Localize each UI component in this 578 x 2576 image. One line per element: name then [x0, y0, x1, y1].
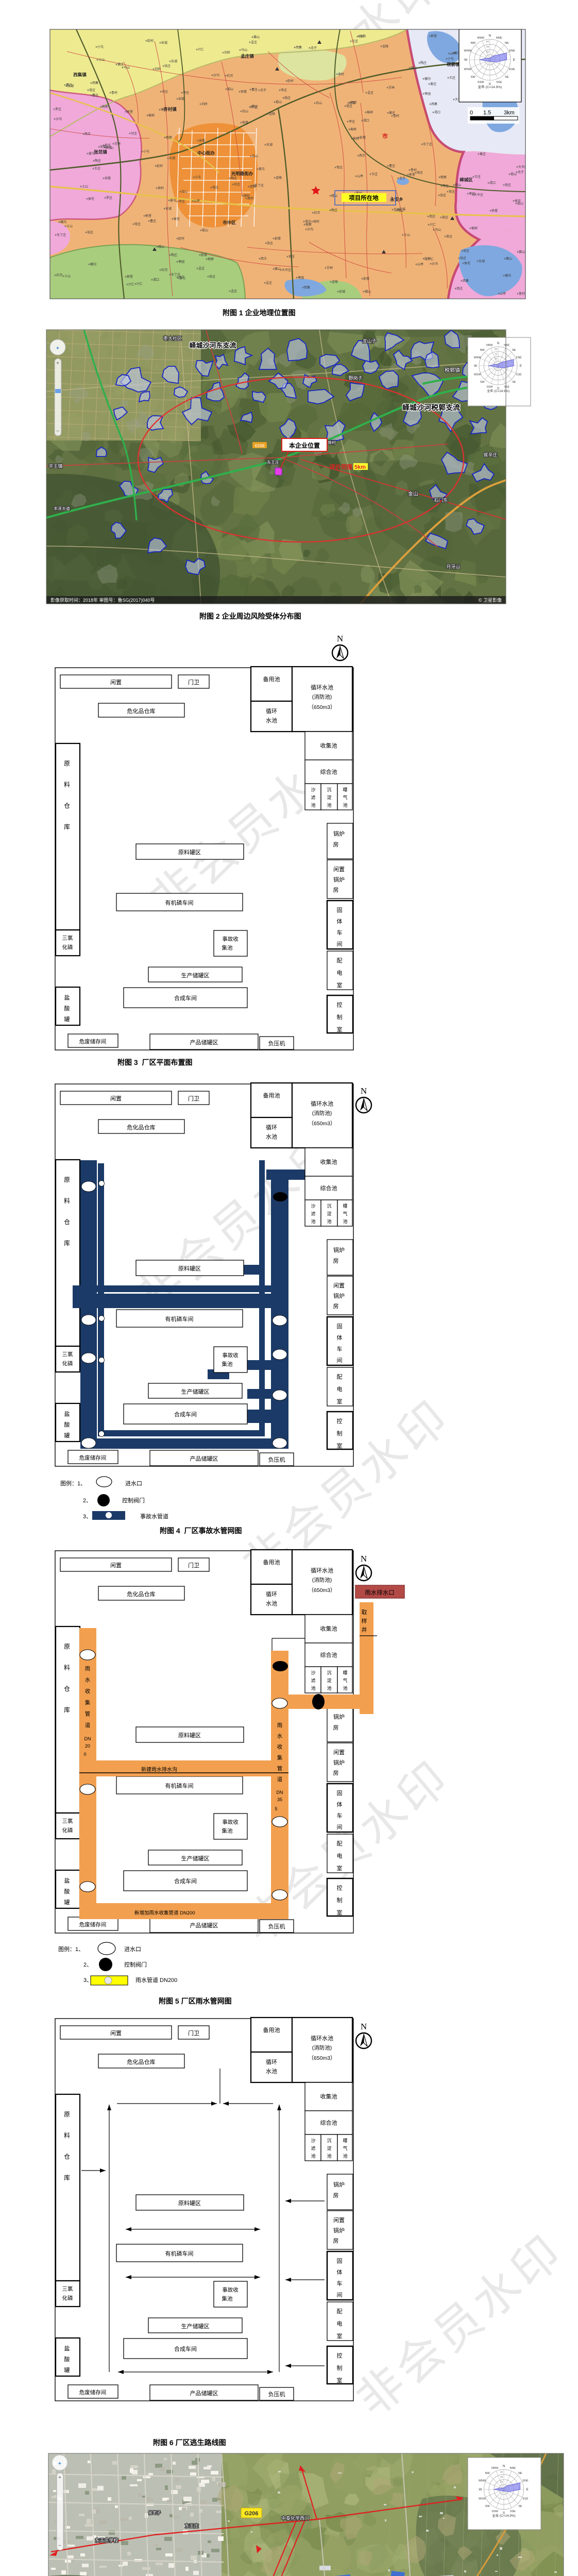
svg-text:付庄: 付庄: [162, 90, 168, 94]
svg-text:全年 (C=14.9%): 全年 (C=14.9%): [478, 84, 502, 89]
svg-text:孤山: 孤山: [227, 87, 233, 91]
svg-text:官庄: 官庄: [463, 249, 469, 253]
svg-text:北于: 北于: [311, 46, 317, 50]
svg-text:孟庄: 孟庄: [266, 281, 272, 285]
svg-text:孟庄镇: 孟庄镇: [241, 54, 254, 59]
svg-text:N: N: [361, 1086, 367, 1096]
svg-text:南庄: 南庄: [456, 286, 463, 291]
svg-text:孟庄: 孟庄: [231, 289, 237, 293]
svg-text:陶庄: 陶庄: [231, 176, 237, 180]
svg-text:雨: 雨: [85, 1666, 91, 1672]
svg-text:西王: 西王: [359, 154, 365, 158]
svg-text:孤山: 孤山: [517, 201, 523, 206]
svg-text:5km: 5km: [354, 464, 366, 470]
svg-text:WNW: WNW: [464, 49, 471, 53]
svg-text:南庄: 南庄: [284, 96, 291, 100]
svg-text:WNW: WNW: [474, 356, 481, 359]
svg-text:郭里: 郭里: [145, 214, 151, 218]
svg-text:官庄: 官庄: [288, 255, 295, 259]
svg-text:侯宅: 侯宅: [464, 261, 470, 265]
svg-text:山亭: 山亭: [194, 199, 200, 203]
svg-text:E: E: [520, 364, 522, 368]
svg-text:+: +: [58, 2475, 61, 2481]
svg-text:郭里: 郭里: [431, 34, 437, 38]
svg-text:税郭: 税郭: [166, 135, 172, 140]
svg-text:峨山: 峨山: [365, 290, 371, 294]
svg-text:东丁庄: 东丁庄: [423, 142, 432, 146]
svg-text:DN: DN: [84, 1736, 91, 1741]
svg-text:NNW: NNW: [477, 37, 484, 40]
svg-text:0: 0: [83, 1752, 86, 1757]
svg-text:鲁村: 鲁村: [111, 91, 117, 95]
svg-text:NW: NW: [480, 349, 485, 352]
svg-text:王庄: 王庄: [94, 166, 100, 171]
svg-text:兴仁: 兴仁: [137, 282, 143, 286]
svg-text:官庄: 官庄: [449, 190, 455, 194]
svg-text:NW: NW: [470, 42, 475, 45]
svg-text:西集镇: 西集镇: [73, 72, 87, 77]
svg-text:WSW: WSW: [474, 374, 481, 377]
svg-text:© 卫星影像: © 卫星影像: [479, 597, 502, 603]
svg-text:SSE: SSE: [510, 2510, 516, 2513]
svg-text:付庄: 付庄: [234, 182, 240, 187]
svg-text:ESE: ESE: [516, 374, 522, 377]
svg-text:10: 10: [495, 358, 497, 360]
svg-text:东湖: 东湖: [266, 143, 273, 147]
svg-text:10: 10: [486, 50, 489, 54]
svg-text:N: N: [489, 34, 491, 38]
svg-text:赵村: 赵村: [178, 236, 184, 241]
svg-text:马山: 马山: [124, 65, 130, 70]
svg-text:丰泽大道: 丰泽大道: [54, 506, 70, 511]
svg-text:事故水管道: 事故水管道: [140, 1513, 168, 1520]
svg-text:马山: 马山: [435, 228, 441, 232]
svg-text:石河: 石河: [161, 268, 167, 272]
svg-text:新建雨水排水沟: 新建雨水排水沟: [141, 1766, 177, 1773]
svg-text:NNW: NNW: [486, 344, 493, 347]
svg-text:兴仁: 兴仁: [430, 223, 436, 227]
svg-text:NNE: NNE: [504, 344, 510, 347]
svg-text:曹庄: 曹庄: [389, 164, 395, 168]
svg-text:常庄: 常庄: [346, 104, 352, 108]
svg-text:控制阀门: 控制阀门: [124, 1961, 147, 1968]
svg-text:西王: 西王: [261, 257, 267, 261]
svg-text:沙沟: 沙沟: [307, 227, 313, 231]
svg-text:沙沟: 沙沟: [432, 262, 438, 266]
svg-text:管: 管: [85, 1710, 91, 1717]
svg-text:SSE: SSE: [504, 385, 509, 388]
svg-text:G206: G206: [245, 2511, 259, 2517]
svg-text:15: 15: [486, 45, 489, 48]
svg-text:李庄: 李庄: [179, 199, 185, 204]
svg-text:刘岭: 刘岭: [155, 67, 161, 71]
svg-text:黄庄: 黄庄: [480, 152, 486, 156]
svg-text:永安乡: 永安乡: [389, 197, 403, 202]
svg-text:5: 5: [275, 1806, 277, 1811]
svg-text:赵村: 赵村: [147, 39, 154, 43]
svg-text:彭楼: 彭楼: [360, 135, 366, 140]
svg-text:榆树: 榆树: [471, 226, 478, 230]
svg-text:平王镇: 平王镇: [48, 463, 62, 469]
svg-text:−: −: [58, 2543, 61, 2549]
svg-text:安城: 安城: [165, 207, 172, 211]
svg-text:枣大社区: 枣大社区: [163, 335, 182, 341]
svg-text:姜屯: 姜屯: [170, 198, 176, 202]
svg-text:山亭: 山亭: [417, 262, 423, 266]
svg-text:WNW: WNW: [479, 2480, 486, 2483]
svg-text:渴口: 渴口: [489, 181, 496, 185]
svg-text:宋楼: 宋楼: [105, 176, 111, 180]
svg-text:1.5: 1.5: [483, 110, 491, 116]
svg-text:东湖: 东湖: [171, 59, 177, 63]
svg-text:齐村镇: 齐村镇: [163, 107, 177, 112]
svg-text:35: 35: [277, 1797, 282, 1802]
svg-text:姜屯: 姜屯: [259, 167, 265, 171]
svg-text:15: 15: [495, 352, 497, 355]
svg-text:金陵: 金陵: [382, 44, 388, 48]
svg-text:峨山: 峨山: [455, 183, 461, 187]
svg-text:ENE: ENE: [516, 356, 522, 359]
svg-text:水: 水: [85, 1677, 91, 1683]
svg-text:曹庄: 曹庄: [66, 83, 72, 87]
svg-text:常庄: 常庄: [336, 165, 343, 170]
svg-text:孤山: 孤山: [276, 100, 282, 104]
svg-text:SW: SW: [485, 2505, 490, 2508]
svg-text:周村: 周村: [247, 196, 253, 200]
svg-text:SSW: SSW: [478, 81, 485, 84]
svg-text:取: 取: [362, 1609, 367, 1616]
svg-text:雨水排水口: 雨水排水口: [365, 1589, 395, 1596]
svg-text:宋楼: 宋楼: [199, 139, 205, 143]
svg-text:20: 20: [85, 1743, 90, 1749]
svg-text:东湖: 东湖: [169, 156, 175, 160]
svg-text:兴仁: 兴仁: [198, 47, 204, 52]
svg-text:土山: 土山: [98, 58, 105, 62]
svg-text:NE: NE: [505, 42, 509, 45]
svg-text:NNW: NNW: [491, 2467, 499, 2470]
svg-text:N: N: [337, 634, 343, 643]
svg-text:兴仁: 兴仁: [428, 257, 434, 261]
svg-text:W: W: [464, 58, 468, 62]
svg-text:−: −: [56, 429, 59, 434]
svg-text:徐楼: 徐楼: [241, 90, 247, 94]
svg-text:赵村: 赵村: [157, 164, 163, 168]
svg-text:赛山: 赛山: [519, 250, 525, 254]
svg-text:彭楼: 彭楼: [275, 236, 281, 241]
svg-text:刘岭: 刘岭: [224, 50, 230, 55]
svg-text:图例：1、: 图例：1、: [60, 1480, 86, 1487]
svg-text:进水口: 进水口: [124, 1946, 141, 1953]
svg-text:样: 样: [362, 1617, 367, 1624]
svg-text:市: 市: [382, 132, 388, 140]
svg-text:金陵: 金陵: [332, 280, 338, 284]
svg-text:渴口: 渴口: [434, 110, 440, 114]
svg-text:NE: NE: [512, 349, 516, 352]
svg-text:曹庄: 曹庄: [251, 88, 258, 92]
svg-text:榆树: 榆树: [148, 113, 155, 117]
svg-text:陶庄: 陶庄: [420, 61, 427, 65]
svg-text:侯宅: 侯宅: [88, 197, 94, 201]
svg-text:张庄: 张庄: [267, 241, 273, 245]
svg-text:W: W: [479, 2488, 482, 2492]
svg-text:马山: 马山: [241, 48, 247, 52]
svg-text:黄庄: 黄庄: [389, 111, 395, 115]
svg-text:黄庄: 黄庄: [430, 82, 436, 86]
svg-text:全年 (C=14.9%): 全年 (C=14.9%): [492, 2513, 515, 2518]
svg-text:沙沟: 沙沟: [213, 73, 219, 77]
svg-text:控制阀门: 控制阀门: [122, 1497, 145, 1504]
svg-text:集: 集: [277, 1754, 283, 1761]
svg-text:东丁庄: 东丁庄: [57, 233, 66, 237]
svg-text:周村: 周村: [313, 219, 319, 224]
svg-text:南庄: 南庄: [429, 214, 435, 218]
svg-text:+: +: [56, 361, 59, 366]
svg-text:孟庄: 孟庄: [367, 91, 373, 95]
svg-text:雨水管道 DN200: 雨水管道 DN200: [135, 1976, 177, 1984]
svg-text:榆树: 榆树: [353, 137, 359, 141]
svg-text:陶庄: 陶庄: [171, 253, 177, 257]
svg-text:N: N: [503, 2464, 505, 2468]
svg-text:SE: SE: [505, 76, 509, 79]
svg-text:ENE: ENE: [509, 49, 515, 53]
svg-text:东王庄学校: 东王庄学校: [95, 2537, 118, 2543]
svg-text:税郭镇: 税郭镇: [447, 62, 460, 67]
svg-text:20: 20: [495, 348, 497, 350]
svg-text:峨山: 峨山: [331, 194, 337, 198]
svg-text:山亭: 山亭: [450, 52, 456, 56]
svg-text:峨山: 峨山: [158, 245, 164, 249]
svg-text:龙山子: 龙山子: [362, 338, 376, 344]
svg-text:张庄: 张庄: [440, 193, 446, 197]
svg-text:沙沟: 沙沟: [360, 34, 366, 38]
svg-text:李庄: 李庄: [281, 88, 287, 92]
svg-text:北于: 北于: [399, 176, 405, 180]
svg-text:榆树: 榆树: [350, 127, 356, 131]
svg-text:收: 收: [277, 1743, 283, 1750]
svg-text:安城: 安城: [399, 207, 405, 211]
svg-text:大辛庄: 大辛庄: [518, 165, 528, 169]
svg-text:鲁村: 鲁村: [519, 292, 525, 296]
svg-text:山亭: 山亭: [357, 174, 363, 178]
svg-text:彭楼: 彭楼: [363, 277, 369, 281]
svg-text:鲁村: 鲁村: [411, 168, 417, 172]
svg-text:常庄: 常庄: [89, 88, 95, 92]
svg-text:沙沟: 沙沟: [56, 117, 62, 121]
svg-text:陶庄: 陶庄: [95, 159, 101, 163]
svg-text:评价范围: 评价范围: [330, 463, 352, 470]
svg-text:王庄: 王庄: [449, 76, 455, 80]
svg-text:罗庄: 罗庄: [252, 105, 258, 109]
svg-text:郭里: 郭里: [127, 110, 133, 114]
svg-text:土山: 土山: [66, 224, 73, 228]
svg-text:中泰化学西门: 中泰化学西门: [281, 2515, 309, 2521]
svg-text:大辛庄: 大辛庄: [474, 193, 483, 197]
svg-text:小屯: 小屯: [143, 149, 149, 154]
svg-text:孟庄: 孟庄: [251, 40, 257, 44]
svg-text:东湖: 东湖: [479, 259, 485, 263]
svg-text:大辛庄: 大辛庄: [282, 268, 291, 272]
svg-text:西集: 西集: [92, 81, 98, 85]
svg-text:孟庄: 孟庄: [198, 266, 205, 270]
svg-text:宋楼: 宋楼: [178, 97, 184, 101]
svg-text:东王庄: 东王庄: [184, 2523, 198, 2529]
svg-text:ENE: ENE: [522, 2480, 529, 2483]
svg-text:进水口: 进水口: [125, 1480, 142, 1487]
svg-text:6268: 6268: [255, 443, 265, 448]
svg-text:市中区: 市中区: [223, 220, 236, 225]
svg-text:侯宅子: 侯宅子: [148, 2510, 161, 2515]
svg-text:✦: ✦: [56, 346, 60, 351]
svg-text:N: N: [361, 2022, 367, 2031]
svg-text:曹庄: 曹庄: [150, 219, 156, 223]
svg-text:罗庄: 罗庄: [106, 196, 112, 200]
svg-text:苗庄: 苗庄: [442, 215, 448, 219]
svg-text:W: W: [474, 364, 477, 368]
svg-text:金山: 金山: [408, 490, 418, 497]
svg-text:SW: SW: [471, 76, 476, 79]
svg-text:张庄: 张庄: [87, 230, 93, 234]
svg-text:NNE: NNE: [509, 2467, 516, 2470]
svg-text:渴口: 渴口: [153, 278, 159, 282]
svg-text:刘岭: 刘岭: [201, 102, 208, 106]
svg-text:王庄: 王庄: [474, 175, 481, 179]
svg-text:ESE: ESE: [522, 2497, 528, 2500]
svg-text:罗庄: 罗庄: [55, 107, 61, 111]
svg-text:项目所在地: 项目所在地: [349, 194, 379, 201]
svg-text:横沟: 横沟: [90, 262, 96, 266]
svg-text:榆树: 榆树: [367, 110, 373, 114]
svg-text:付庄: 付庄: [178, 275, 184, 279]
svg-text:税郭: 税郭: [102, 105, 108, 109]
svg-text:张庄: 张庄: [460, 256, 466, 260]
svg-text:小屯: 小屯: [195, 175, 201, 179]
svg-text:李庄: 李庄: [349, 120, 355, 124]
svg-text:安城: 安城: [339, 290, 345, 294]
svg-text:张庄: 张庄: [164, 64, 171, 68]
svg-text:曹庄: 曹庄: [92, 93, 98, 97]
svg-text:小屯: 小屯: [448, 57, 454, 61]
svg-text:官庄: 官庄: [105, 143, 111, 147]
svg-text:侯辛庄: 侯辛庄: [483, 452, 497, 457]
svg-text:常庄: 常庄: [134, 222, 141, 226]
svg-text:SE: SE: [518, 2505, 522, 2508]
svg-text:WSW: WSW: [464, 68, 472, 71]
svg-text:峨山: 峨山: [411, 66, 417, 70]
svg-text:E: E: [513, 58, 516, 62]
svg-text:西集: 西集: [431, 102, 437, 106]
svg-text:郭里: 郭里: [409, 173, 415, 177]
svg-text:甘林: 甘林: [114, 142, 121, 146]
svg-text:南庄: 南庄: [417, 171, 423, 175]
svg-text:金陵: 金陵: [269, 112, 275, 116]
svg-text:税郭镇: 税郭镇: [445, 367, 460, 374]
svg-text:西集: 西集: [304, 285, 310, 290]
svg-text:新增加雨水收集管道 DN200: 新增加雨水收集管道 DN200: [134, 1910, 195, 1916]
svg-text:常庄: 常庄: [212, 185, 218, 190]
svg-text:金陵: 金陵: [276, 176, 282, 180]
svg-text:王庄: 王庄: [352, 39, 358, 43]
svg-text:SE: SE: [512, 381, 516, 384]
svg-text:安城: 安城: [161, 41, 167, 45]
svg-text:NNE: NNE: [496, 37, 502, 40]
svg-text:SW: SW: [480, 381, 485, 384]
svg-text:陶庄: 陶庄: [331, 208, 337, 212]
svg-text:官庄: 官庄: [209, 275, 215, 279]
svg-text:枣园: 枣园: [178, 260, 184, 264]
svg-text:道: 道: [85, 1722, 91, 1728]
svg-text:彭楼: 彭楼: [201, 253, 207, 257]
svg-text:野岗子: 野岗子: [348, 376, 362, 381]
svg-text:井: 井: [362, 1626, 367, 1633]
svg-text:水: 水: [277, 1733, 283, 1739]
svg-text:东丁庄: 东丁庄: [254, 183, 264, 188]
svg-text:兴仁: 兴仁: [128, 282, 134, 286]
svg-text:土山: 土山: [82, 184, 88, 189]
svg-text:徐楼: 徐楼: [491, 209, 498, 213]
svg-text:横沟: 横沟: [60, 220, 66, 224]
svg-text:NW: NW: [485, 2472, 490, 2475]
svg-text:石河: 石河: [227, 74, 233, 78]
svg-text:3、: 3、: [83, 1514, 92, 1520]
svg-text:西王: 西王: [84, 132, 91, 136]
svg-text:周村: 周村: [338, 72, 344, 76]
svg-text:✦: ✦: [58, 2461, 62, 2467]
svg-text:3km: 3km: [504, 110, 515, 116]
svg-text:中心街办: 中心街办: [197, 150, 215, 156]
svg-text:SSE: SSE: [496, 81, 502, 84]
svg-text:甘林: 甘林: [388, 86, 395, 90]
svg-text:15: 15: [500, 2476, 503, 2478]
svg-text:管: 管: [277, 1765, 283, 1772]
svg-text:王庄: 王庄: [371, 172, 378, 176]
svg-text:赛山: 赛山: [253, 35, 260, 39]
svg-text:石河: 石河: [314, 211, 320, 215]
svg-text:小屯: 小屯: [97, 45, 104, 49]
svg-text:图例：1、: 图例：1、: [58, 1945, 84, 1953]
svg-text:石门东: 石门东: [434, 497, 448, 503]
svg-text:孤山: 孤山: [511, 172, 517, 176]
svg-text:枣园: 枣园: [424, 92, 431, 96]
svg-text:ESE: ESE: [509, 68, 515, 71]
svg-text:20: 20: [486, 40, 489, 43]
svg-text:E: E: [526, 2488, 528, 2492]
svg-text:西王: 西王: [351, 101, 357, 105]
svg-text:收: 收: [85, 1688, 91, 1694]
svg-text:雨: 雨: [277, 1722, 283, 1728]
svg-text:土山: 土山: [64, 274, 71, 278]
svg-text:税郭: 税郭: [208, 257, 214, 261]
svg-text:李庄: 李庄: [183, 91, 189, 95]
svg-text:10: 10: [500, 2481, 503, 2483]
svg-text:月牙山: 月牙山: [446, 564, 460, 569]
svg-text:甘林: 甘林: [327, 266, 333, 270]
svg-text:苗庄: 苗庄: [305, 219, 311, 224]
svg-text:N: N: [361, 1554, 367, 1564]
svg-text:横沟: 横沟: [424, 77, 431, 81]
svg-text:峄城沙河税郭支流: 峄城沙河税郭支流: [402, 403, 460, 412]
svg-text:郭里: 郭里: [127, 275, 133, 279]
svg-text:周村: 周村: [158, 186, 164, 190]
svg-text:集: 集: [85, 1699, 91, 1706]
svg-text:NE: NE: [518, 2472, 522, 2475]
svg-text:白山: 白山: [181, 190, 188, 194]
svg-text:黄庄: 黄庄: [117, 62, 124, 66]
svg-text:东王庄: 东王庄: [267, 460, 279, 465]
svg-text:20: 20: [500, 2470, 503, 2473]
svg-text:苗庄: 苗庄: [446, 234, 452, 239]
svg-text:西集: 西集: [463, 279, 469, 283]
svg-text:北于: 北于: [518, 170, 524, 174]
